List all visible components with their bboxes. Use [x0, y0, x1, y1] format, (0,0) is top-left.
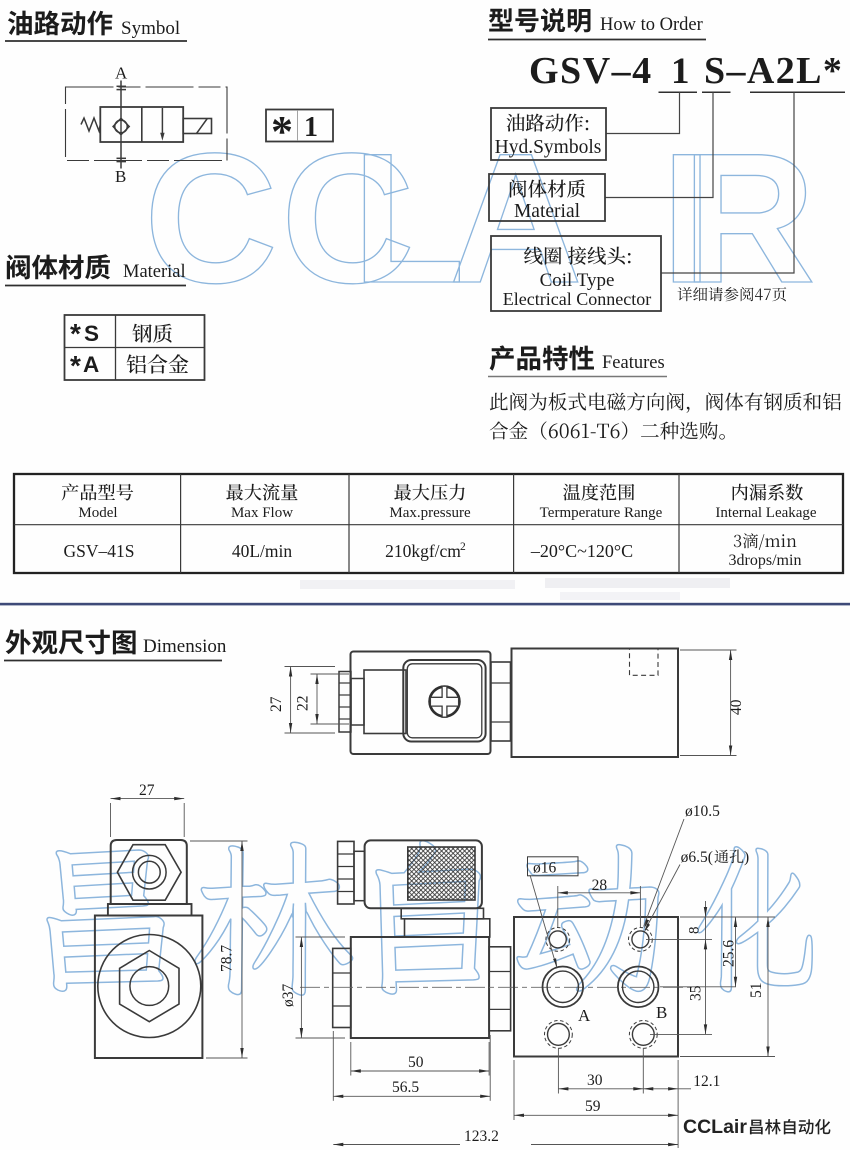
- svg-text:Model: Model: [78, 505, 117, 521]
- svg-text:56.5: 56.5: [392, 1079, 419, 1096]
- svg-text:1: 1: [304, 112, 318, 143]
- svg-text:25.6: 25.6: [721, 940, 738, 967]
- svg-text:–20°C~120°C: –20°C~120°C: [530, 541, 633, 561]
- svg-text:Max.pressure: Max.pressure: [389, 505, 471, 521]
- svg-text:8: 8: [687, 927, 703, 935]
- svg-text:30: 30: [587, 1072, 603, 1089]
- svg-text:123.2: 123.2: [464, 1128, 499, 1145]
- svg-text:B: B: [656, 1003, 667, 1022]
- svg-text:27: 27: [139, 782, 155, 799]
- svg-text:S: S: [84, 321, 99, 346]
- svg-text:Features: Features: [602, 353, 665, 373]
- svg-text:*: *: [70, 350, 81, 381]
- svg-text:A: A: [115, 64, 128, 83]
- svg-text:Electrical Connector: Electrical Connector: [503, 289, 651, 309]
- svg-text:Material: Material: [514, 201, 581, 222]
- svg-text:27: 27: [268, 696, 285, 712]
- svg-text:12.1: 12.1: [693, 1073, 720, 1090]
- svg-text:*: *: [70, 318, 81, 349]
- svg-text:): ): [744, 849, 749, 866]
- svg-text:ø37: ø37: [280, 984, 297, 1008]
- svg-text:3drops/min: 3drops/min: [729, 552, 802, 569]
- svg-text:35: 35: [688, 985, 705, 1001]
- svg-text:2: 2: [460, 541, 466, 553]
- svg-text:ø16: ø16: [533, 860, 557, 877]
- svg-text:GSV–41S: GSV–41S: [64, 541, 135, 561]
- svg-text:GSV–4: GSV–4: [529, 50, 653, 92]
- svg-text:S–A2L*: S–A2L*: [704, 50, 843, 92]
- svg-text:Dimension: Dimension: [143, 636, 227, 657]
- svg-text:A: A: [578, 1006, 591, 1025]
- svg-text:22: 22: [295, 696, 312, 712]
- svg-text:Symbol: Symbol: [121, 18, 180, 39]
- svg-text:A: A: [83, 352, 99, 377]
- svg-text:How to Order: How to Order: [600, 15, 703, 35]
- svg-text:CCLair: CCLair: [683, 1116, 747, 1138]
- svg-text:40L/min: 40L/min: [232, 541, 293, 561]
- svg-text:*: *: [271, 107, 293, 156]
- svg-text:78.7: 78.7: [219, 945, 236, 972]
- svg-text:210kgf/cm: 210kgf/cm: [385, 541, 461, 561]
- svg-text:50: 50: [408, 1054, 424, 1071]
- svg-text:51: 51: [748, 983, 765, 999]
- svg-text:Material: Material: [123, 262, 186, 282]
- svg-text:Hyd.Symbols: Hyd.Symbols: [495, 137, 602, 158]
- svg-text:28: 28: [592, 877, 608, 894]
- svg-text:Max Flow: Max Flow: [231, 505, 293, 521]
- svg-text:Termperature Range: Termperature Range: [540, 505, 663, 521]
- svg-text:ø10.5: ø10.5: [685, 803, 720, 820]
- svg-text:ø6.5(: ø6.5(: [681, 849, 713, 866]
- svg-text:1: 1: [671, 51, 690, 92]
- svg-text:Coil Type: Coil Type: [540, 270, 615, 291]
- svg-text:Internal Leakage: Internal Leakage: [715, 505, 817, 521]
- svg-text:40: 40: [728, 699, 745, 715]
- svg-text:B: B: [115, 167, 126, 186]
- svg-text:59: 59: [585, 1098, 601, 1115]
